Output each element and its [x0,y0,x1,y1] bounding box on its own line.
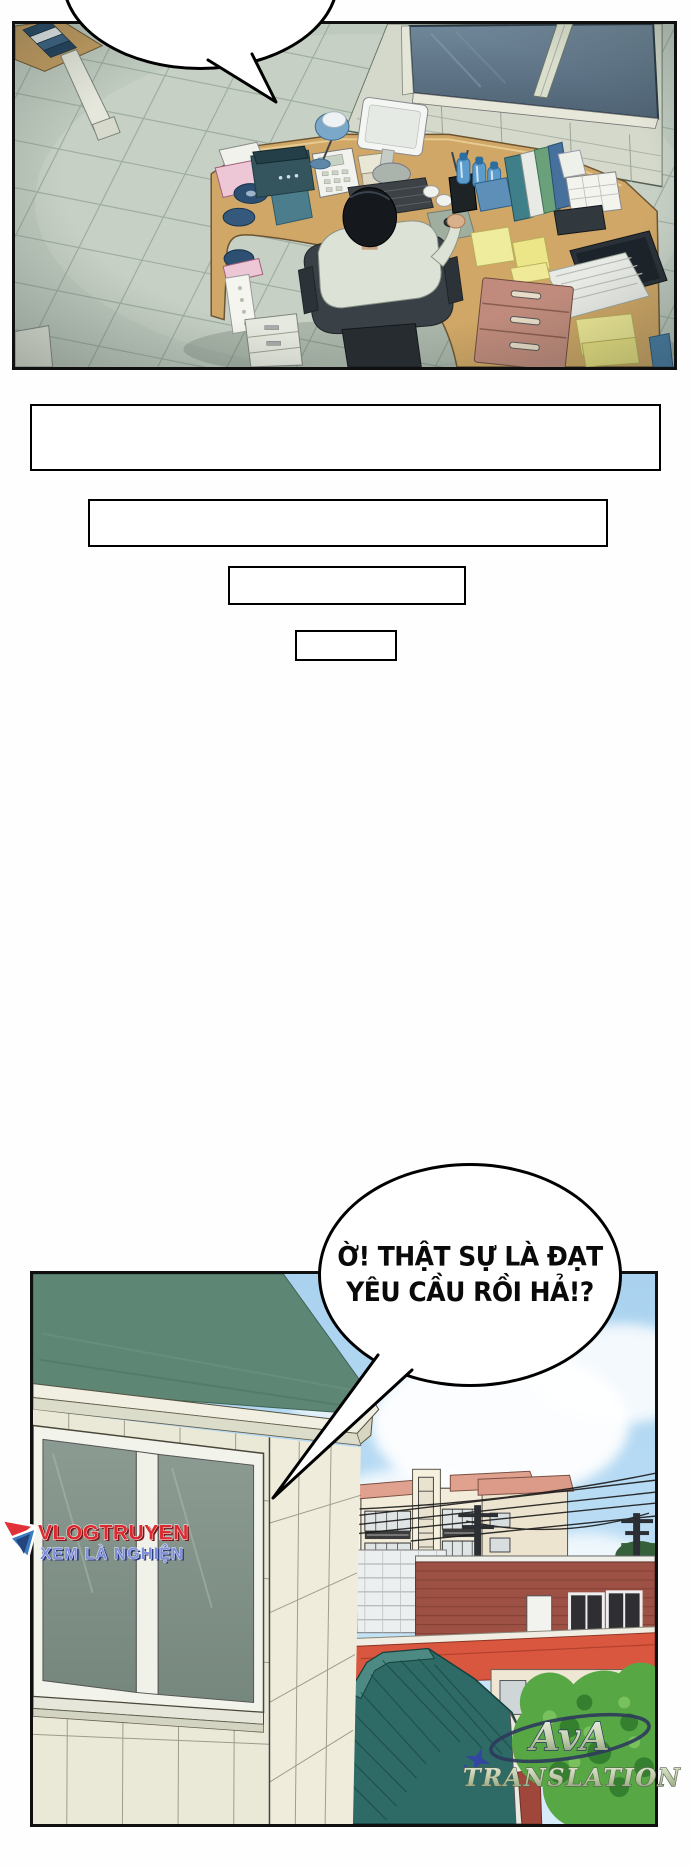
vlogtruyen-watermark: VLOGTRUYEN VLOGTRUYEN XEM LÀ NGHIỆN XEM … [0,1512,210,1568]
speech-bubble-bottom-text: Ờ! THẬT SỰ LÀ ĐẠT YÊU CẦU RỒI HẢ!? [330,1181,610,1370]
ava-line2: TRANSLATION [463,1763,681,1792]
panel-office-scene [12,21,677,370]
house-window [33,1425,264,1732]
narration-box-2 [88,499,608,547]
narration-box-4 [295,630,397,661]
narration-box-3 [228,566,466,605]
ava-line1: AvA [527,1714,610,1759]
narration-box-1 [30,404,661,471]
ava-watermark: AvA TRANSLATION [448,1698,690,1793]
vlogtruyen-line2: XEM LÀ NGHIỆN [40,1544,184,1563]
comic-page: Ờ! THẬT SỰ LÀ ĐẠT YÊU CẦU RỒI HẢ!? VLOGT… [0,0,690,1867]
vlogtruyen-line1: VLOGTRUYEN [38,1522,189,1545]
vignette-overlay [15,24,674,367]
office-scene-illustration [15,24,674,367]
bubble-line-2: YÊU CẦU RỒI HẢ!? [346,1275,594,1311]
vlogtruyen-logo-icon [2,1520,36,1558]
bubble-line-1: Ờ! THẬT SỰ LÀ ĐẠT [337,1239,602,1275]
